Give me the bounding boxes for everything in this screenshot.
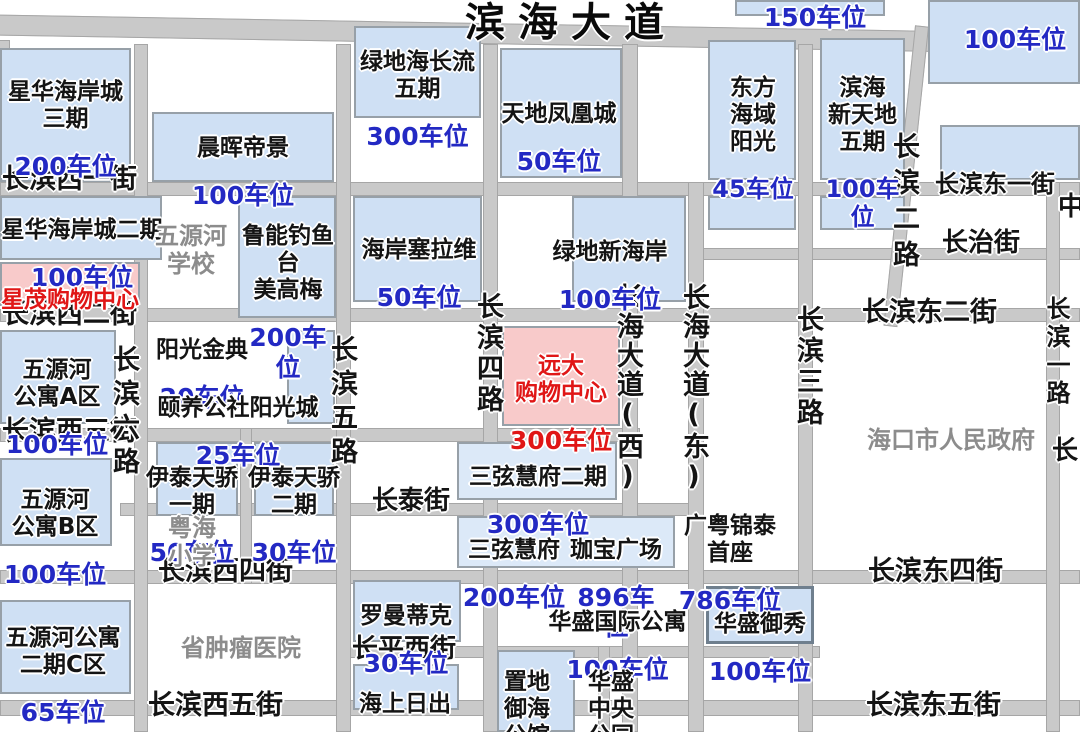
street-label: 长滨东五街 <box>866 690 1001 722</box>
street-label-partial: 长 <box>1052 436 1078 467</box>
map-canvas[interactable]: 滨海大道 长滨西一街 长滨东一街 长治街 长滨西二街 长滨东二街 长滨西三街 长… <box>0 0 1080 732</box>
parking-count: 150车位 <box>740 3 890 33</box>
parking-count: 45车位 <box>710 175 796 203</box>
place-name: 颐养公社阳光城 <box>150 395 326 422</box>
place-label: 海岸塞拉维 50车位 <box>355 218 483 331</box>
place-name: 伊泰天骄 二期 <box>248 465 340 519</box>
place-name: 罗曼蒂克 <box>354 603 458 630</box>
street-label: 长滨西五街 <box>148 690 283 722</box>
place-label: 置地 御海 公馆 <box>498 650 556 732</box>
parking-count: 30车位 <box>248 538 340 568</box>
place-name: 星茂购物中心 <box>0 287 140 314</box>
place-name: 华盛国际公寓 <box>540 609 695 636</box>
place-name: 阳光金典 <box>150 337 254 364</box>
place-name: 远大 购物中心 <box>504 353 618 407</box>
parking-count: 100车位 <box>820 175 905 232</box>
street-label: 长滨东一街 <box>935 170 1055 198</box>
parking-count: 100车位 <box>706 657 814 687</box>
place-name: 星华海岸城二期 <box>0 217 166 244</box>
street-label-vertical: 长滨三路 <box>794 305 821 429</box>
place-name: 华盛御秀 <box>706 611 814 638</box>
street-label-vertical: 长海大道(东) <box>680 283 707 494</box>
place-name: 天地凤凰城 <box>494 101 624 128</box>
street-label: 长治街 <box>942 228 1020 259</box>
street-label-vertical: 长滨一路 <box>1044 296 1068 408</box>
place-label: 绿地新海岸 100车位 <box>540 220 680 333</box>
parking-count: 300车位 <box>354 122 481 152</box>
place-label: 东方 海域 阳光 45车位 <box>710 56 796 222</box>
parking-count: 100车位 <box>950 25 1080 55</box>
place-label: 海上日出 500车位 <box>352 672 458 732</box>
place-name: 三弦慧府二期 <box>457 464 619 491</box>
place-name: 星华海岸城 三期 <box>0 79 131 133</box>
parking-count: 100车位 <box>540 285 680 315</box>
place-label: 150车位 <box>740 0 890 51</box>
landmark-label: 省肿瘤医院 <box>174 634 308 662</box>
parking-count: 100车位 <box>2 430 112 460</box>
parking-count: 100车位 <box>2 560 108 590</box>
place-label: 滨海 新天地 五期 100车位 <box>820 56 905 251</box>
parking-count: 50车位 <box>494 147 624 177</box>
place-label: 伊泰天骄 二期 30车位 <box>248 446 340 586</box>
place-label: 天地凤凰城 50车位 <box>494 82 624 195</box>
place-name: 海岸塞拉维 <box>355 237 483 264</box>
place-label: 100车位 <box>950 6 1080 73</box>
place-name: 滨海 新天地 五期 <box>820 75 905 156</box>
place-name: 五源河 公寓B区 <box>2 487 108 541</box>
place-name: 晨晖帝景 <box>152 135 334 162</box>
place-name: 广粤锦泰 首座 <box>678 513 782 567</box>
place-label: 100车位 <box>556 721 658 732</box>
parking-count: 50车位 <box>355 283 483 313</box>
street-label: 长泰街 <box>372 486 450 517</box>
place-label: 华盛 中央 公园 <box>580 650 642 732</box>
street-label: 长滨东二街 <box>862 297 997 329</box>
street-label-partial: 中 <box>1058 192 1080 223</box>
landmark-label: 海口市人民政府 <box>862 426 1040 454</box>
place-name: 三弦慧府 <box>462 537 566 564</box>
landmark-label: 粤海 小学 <box>162 514 222 571</box>
place-name: 伊泰天骄 一期 <box>142 465 242 519</box>
parking-count: 65车位 <box>0 698 126 728</box>
place-name: 绿地海长流 五期 <box>354 49 481 103</box>
place-label: 绿地海长流 五期 300车位 <box>354 30 481 170</box>
place-label: 星华海岸城 三期 200车位 <box>0 60 131 200</box>
place-name: 珈宝广场 <box>566 537 666 564</box>
place-name: 绿地新海岸 <box>540 239 680 266</box>
place-label: 星茂购物中心 <box>0 268 140 333</box>
street-label-vertical: 长滨六路 <box>110 345 137 481</box>
place-label: 五源河 公寓B区 100车位 <box>2 468 108 608</box>
place-name: 海上日出 <box>352 691 458 718</box>
place-name: 东方 海域 阳光 <box>710 75 796 156</box>
parking-count: 200车位 <box>0 152 131 182</box>
place-label: 90车位 <box>470 721 552 732</box>
main-road-title: 滨海大道 <box>465 0 677 47</box>
place-label: 华盛御秀 100车位 <box>706 592 814 705</box>
place-label: 五源河公寓 二期C区 65车位 <box>0 606 126 732</box>
place-name: 鲁能钓鱼台 美高梅 <box>238 223 338 304</box>
place-label: 五源河 公寓A区 100车位 <box>2 338 112 478</box>
street-label: 长滨东四街 <box>868 556 1003 588</box>
place-name: 五源河公寓 二期C区 <box>0 625 126 679</box>
landmark-label: 五源河 学校 <box>148 222 234 279</box>
place-name: 五源河 公寓A区 <box>2 357 112 411</box>
